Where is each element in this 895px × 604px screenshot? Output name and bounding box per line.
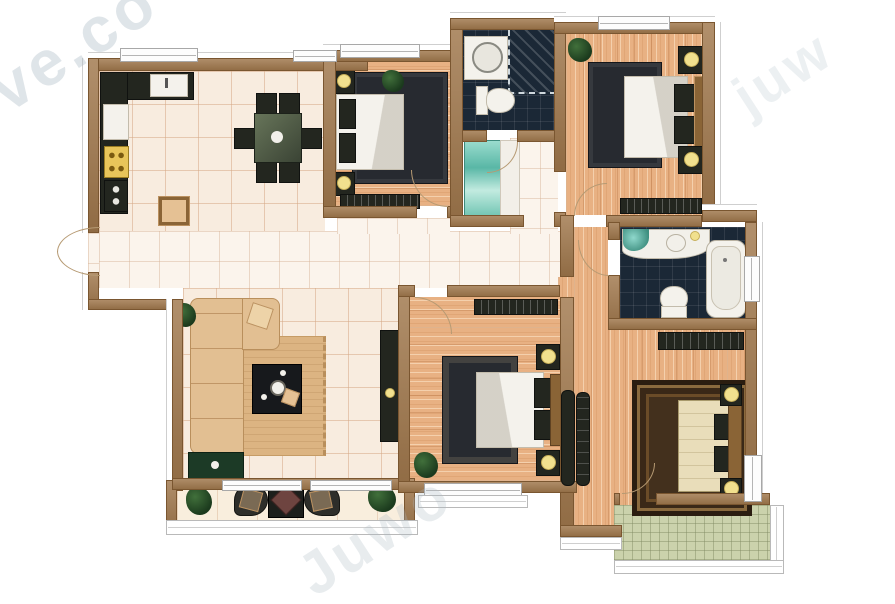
wall-living-left [172, 299, 183, 491]
bathtub-window [744, 256, 760, 302]
bay-window-sill [418, 495, 528, 508]
wall-bath-top-right [554, 18, 566, 172]
balcony-window [222, 480, 302, 491]
wall-bath-right-bottom [608, 318, 757, 330]
balcony-left-railing [166, 520, 418, 535]
bathroom-r-sink-bowl [666, 234, 686, 252]
wall-bath-top-left [450, 18, 463, 227]
balcony-chair-seat [309, 488, 333, 512]
wall-corridor-west [560, 215, 574, 277]
toilet-top-bowl [486, 88, 515, 113]
entrance-door-leaf-lower [57, 251, 100, 276]
bedroom-tr-lamp [684, 52, 699, 67]
watermark-top-right: juw [721, 17, 845, 129]
bathtub-drain-icon [723, 258, 727, 262]
bedroom-tm-window [340, 44, 420, 58]
wall-bedroom-tm-left [323, 50, 336, 218]
bedroom-tr-plant-icon [568, 38, 592, 62]
master-lamp [724, 387, 739, 402]
kitchen-island [158, 196, 190, 226]
dining-chair [256, 160, 277, 183]
washing-machine-drum [472, 42, 503, 73]
coffee-table-decor [261, 394, 267, 400]
wall-living-right [398, 288, 410, 491]
wall-hall-cabinet-stub [450, 215, 524, 227]
sofa-end-flower-icon [211, 461, 219, 469]
wall-master-balcony-a [614, 493, 620, 505]
bedroom-tm-plant-icon [382, 70, 404, 92]
bedroom-bm-lamp [541, 455, 556, 470]
bedroom-tr-window [598, 16, 670, 30]
balcony-right-railing-bottom [614, 560, 784, 574]
bedroom-tr-lamp [684, 152, 699, 167]
dining-table-plate [271, 131, 283, 143]
bedroom-tm-pillow [339, 133, 356, 163]
wall-step-left [88, 299, 183, 310]
bedroom-bm-dresser [474, 299, 558, 315]
refrigerator [103, 104, 129, 140]
bedroom-tm-lamp [337, 74, 351, 88]
wall-hall-bm-top-a [398, 285, 415, 297]
kitchen-sink [150, 74, 188, 97]
hallway-floor-upper [337, 218, 450, 234]
coffee-table-decor [280, 370, 286, 376]
corner-sofa-vertical [190, 298, 244, 454]
tv-console-decor [385, 388, 395, 398]
shower-corner-icon [508, 30, 556, 94]
kitchen-faucet-icon [165, 78, 168, 88]
bedroom-tm-lamp [337, 176, 351, 190]
wall-bedroom-tr-right [702, 22, 715, 222]
floor-plan: ve.co juw Juwo [0, 0, 895, 604]
wall-bedroom-tm-bottom-a [323, 206, 417, 218]
bedroom-bm-plant-icon [414, 452, 438, 478]
wall-bath-right-left-a [608, 222, 620, 240]
tv-console [380, 330, 400, 442]
bedroom-tr-dresser [620, 198, 702, 214]
balcony-window [310, 480, 392, 491]
wall-jog-right [702, 210, 757, 222]
bedroom-bm-wardrobe [561, 390, 575, 486]
dining-chair [279, 160, 300, 183]
watermark-text: juw [721, 17, 844, 127]
dining-chair [299, 128, 322, 149]
kitchen-window [120, 48, 198, 62]
wall-left-upper [88, 58, 99, 233]
bedroom-bm-lamp [541, 349, 556, 364]
oven [104, 180, 128, 212]
bathroom-r-light [690, 231, 700, 241]
stove [104, 146, 129, 178]
hallway-floor [99, 231, 561, 288]
toilet-right-tank [661, 306, 687, 318]
wall-bath-top-top [450, 18, 566, 30]
wall-bedroom-tr-bottom-b [606, 215, 702, 227]
balcony-plant-icon [186, 487, 212, 515]
wall-bath-top-bottom-a [462, 130, 487, 142]
wall-hall-bm-top-b [447, 285, 560, 297]
balcony-right-railing-step [560, 537, 622, 550]
bedroom-tm-pillow [339, 99, 356, 129]
master-dresser [658, 332, 744, 350]
master-wardrobe [576, 392, 590, 486]
bathtub-inner [711, 246, 741, 310]
dining-window [293, 50, 337, 62]
wall-master-bottom [560, 525, 622, 537]
master-window [744, 455, 762, 502]
entrance-door-leaf-upper [57, 227, 100, 252]
